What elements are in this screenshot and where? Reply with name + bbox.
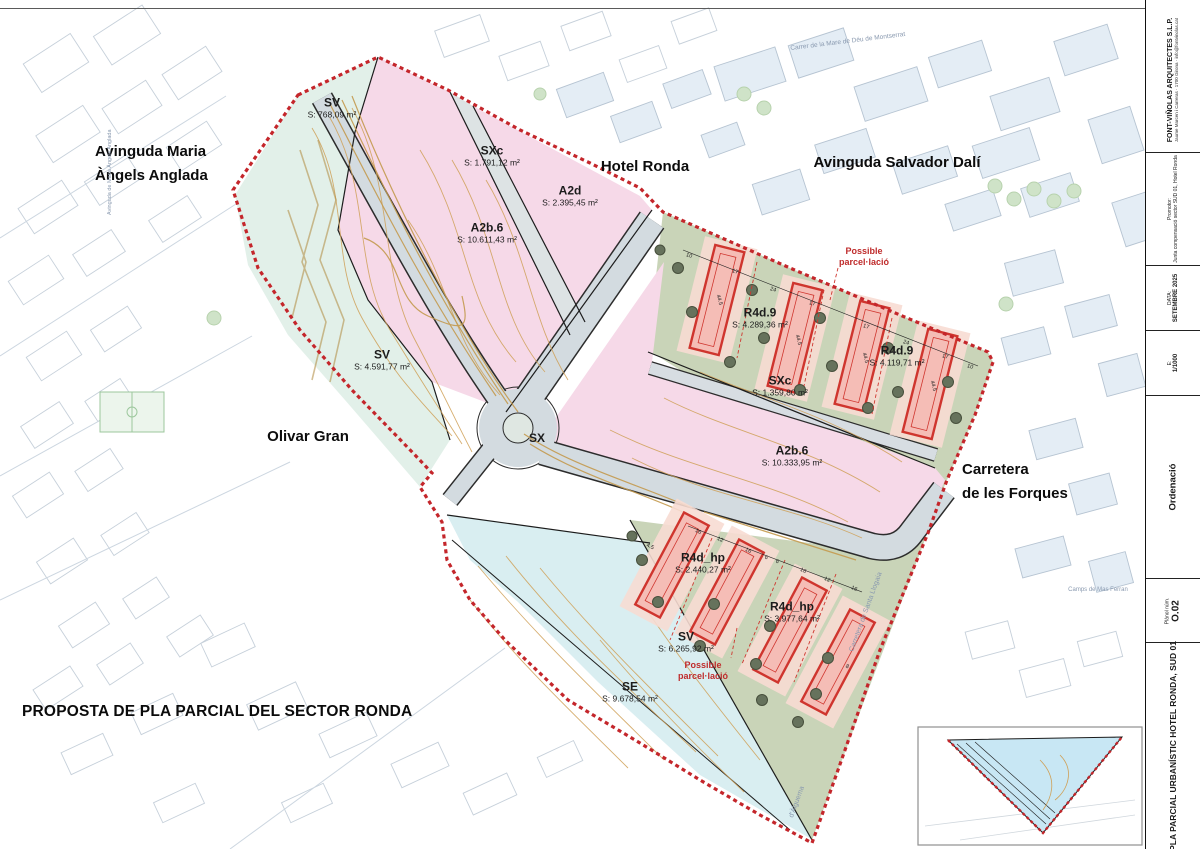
zone-label-se: SE S: 9.678,54 m² (602, 680, 658, 705)
street-label-hotel-ronda: Hotel Ronda (601, 155, 689, 179)
zone-code: SE (602, 680, 658, 694)
zone-label-r4d9-b: R4d.9 S: 4.119,71 m² (869, 344, 924, 369)
zone-label-sv-6265: SV S: 6.265,92 m² (658, 630, 714, 655)
inset-detail (918, 727, 1142, 845)
zone-area: S: 9.678,54 m² (602, 694, 658, 704)
zone-area: S: 2.440,27 m² (675, 565, 731, 575)
date-text: DATA: SETEMBRE 2025 (1167, 274, 1179, 322)
street-label-salvador-dali: Avinguda Salvador Dalí (814, 151, 981, 175)
title-block-section-name: Ordenació (1146, 395, 1200, 578)
zone-code: R4d.9 (732, 306, 788, 320)
title-block-plan-number-section: Plànol núm. O.02 (1146, 578, 1200, 642)
note-line2: parcel·lació (678, 671, 728, 682)
sheet-top-edge (0, 8, 1146, 9)
zone-area: S: 4.289,36 m² (732, 320, 788, 330)
zone-code: R4d.9 (869, 344, 924, 358)
zone-code: R4d_hp (675, 551, 731, 565)
zone-area: S: 3.977,64 m² (764, 614, 820, 624)
section-name: Ordenació (1168, 464, 1179, 511)
place-label-mas-ferran: Camps de Mas Ferran (1068, 587, 1128, 593)
urban-plan-map (0, 0, 1200, 849)
sports-court (100, 392, 164, 432)
zone-code: A2b.6 (457, 221, 517, 235)
architect-info: Jaume Marcen i Carreras · 1700 Girona · … (1174, 18, 1179, 142)
title-block-architect-section: FONT-VIÑOLAS ARQUITECTES S.L.P. Jaume Ma… (1146, 8, 1200, 152)
zone-code: SV (308, 96, 357, 110)
title-block-date-section: DATA: SETEMBRE 2025 (1146, 265, 1200, 330)
note-line1: Possible (678, 660, 728, 671)
zone-label-sv-768: SV S: 768,09 m² (308, 96, 357, 121)
plan-sheet: Avinguda Maria Àngels Anglada Hotel Rond… (0, 0, 1200, 849)
zone-label-r4dhp-b: R4d_hp S: 3.977,64 m² (764, 600, 820, 625)
project-title: PLA PARCIAL URBANÍSTIC HOTEL RONDA, SUD … (1168, 641, 1178, 849)
zone-area: S: 4.119,71 m² (869, 358, 924, 368)
zone-label-a2b6-left: A2b.6 S: 10.611,43 m² (457, 221, 517, 246)
zone-label-sxc-1359: SXc S: 1.359,80 m² (752, 374, 808, 399)
zone-label-a2b6-right: A2b.6 S: 10.333,95 m² (762, 444, 822, 469)
date-value: SETEMBRE 2025 (1173, 274, 1179, 322)
note-possible-parcellacio-top: Possible parcel·lació (839, 246, 889, 269)
zone-area: S: 2.395,45 m² (542, 198, 598, 208)
plan-number-value: O.02 (1171, 597, 1182, 623)
architect-name: FONT-VIÑOLAS ARQUITECTES S.L.P. (1167, 18, 1174, 142)
street-label-anglada-small: Avinguda de Maria Àngels Anglada (107, 129, 113, 215)
title-block-scale-section: E: 1/1000 (1146, 330, 1200, 395)
zone-area: S: 1.359,80 m² (752, 388, 808, 398)
title-block-promotor-section: Promotor: Junta compensació sector SUD 0… (1146, 152, 1200, 265)
street-label-forques: Carretera de les Forques (962, 458, 1068, 506)
zone-label-sxc-1791: SXc S: 1.791,12 m² (464, 144, 520, 169)
zone-code: SXc (464, 144, 520, 158)
zone-area: S: 6.265,92 m² (658, 644, 714, 654)
promotor-value: Junta compensació sector SUD 01, Hotel R… (1173, 155, 1179, 263)
zone-code: SXc (752, 374, 808, 388)
zone-label-r4d9-a: R4d.9 S: 4.289,36 m² (732, 306, 788, 331)
scale-value: 1/1000 (1173, 354, 1179, 372)
plan-number-text: Plànol núm. O.02 (1165, 597, 1182, 623)
zone-area: S: 10.611,43 m² (457, 235, 517, 245)
zone-code: SV (354, 348, 410, 362)
title-block: FONT-VIÑOLAS ARQUITECTES S.L.P. Jaume Ma… (1145, 0, 1200, 849)
street-label-forques-line2: de les Forques (962, 482, 1068, 506)
note-line2: parcel·lació (839, 257, 889, 268)
architect-text: FONT-VIÑOLAS ARQUITECTES S.L.P. Jaume Ma… (1167, 18, 1179, 142)
zone-area: S: 10.333,95 m² (762, 458, 822, 468)
street-label-olivar-gran: Olivar Gran (267, 425, 349, 449)
zone-code: R4d_hp (764, 600, 820, 614)
zone-code: SX (529, 431, 545, 445)
zone-code: A2d (542, 184, 598, 198)
zone-label-r4dhp-a: R4d_hp S: 2.440,27 m² (675, 551, 731, 576)
note-possible-parcellacio-bottom: Possible parcel·lació (678, 660, 728, 683)
zone-label-sx: SX (529, 431, 545, 445)
scale-text: E: 1/1000 (1167, 354, 1179, 372)
promotor-text: Promotor: Junta compensació sector SUD 0… (1167, 155, 1179, 263)
zone-code: A2b.6 (762, 444, 822, 458)
proposal-title: PROPOSTA DE PLA PARCIAL DEL SECTOR RONDA (22, 703, 412, 721)
zone-area: S: 4.591,77 m² (354, 362, 410, 372)
zone-code: SV (658, 630, 714, 644)
zone-area: S: 1.791,12 m² (464, 158, 520, 168)
zone-area: S: 768,09 m² (308, 110, 357, 120)
zone-label-a2d: A2d S: 2.395,45 m² (542, 184, 598, 209)
note-line1: Possible (839, 246, 889, 257)
street-label-forques-line1: Carretera (962, 458, 1068, 482)
zone-label-sv-4591: SV S: 4.591,77 m² (354, 348, 410, 373)
title-block-project-section: PLA PARCIAL URBANÍSTIC HOTEL RONDA, SUD … (1146, 642, 1200, 849)
